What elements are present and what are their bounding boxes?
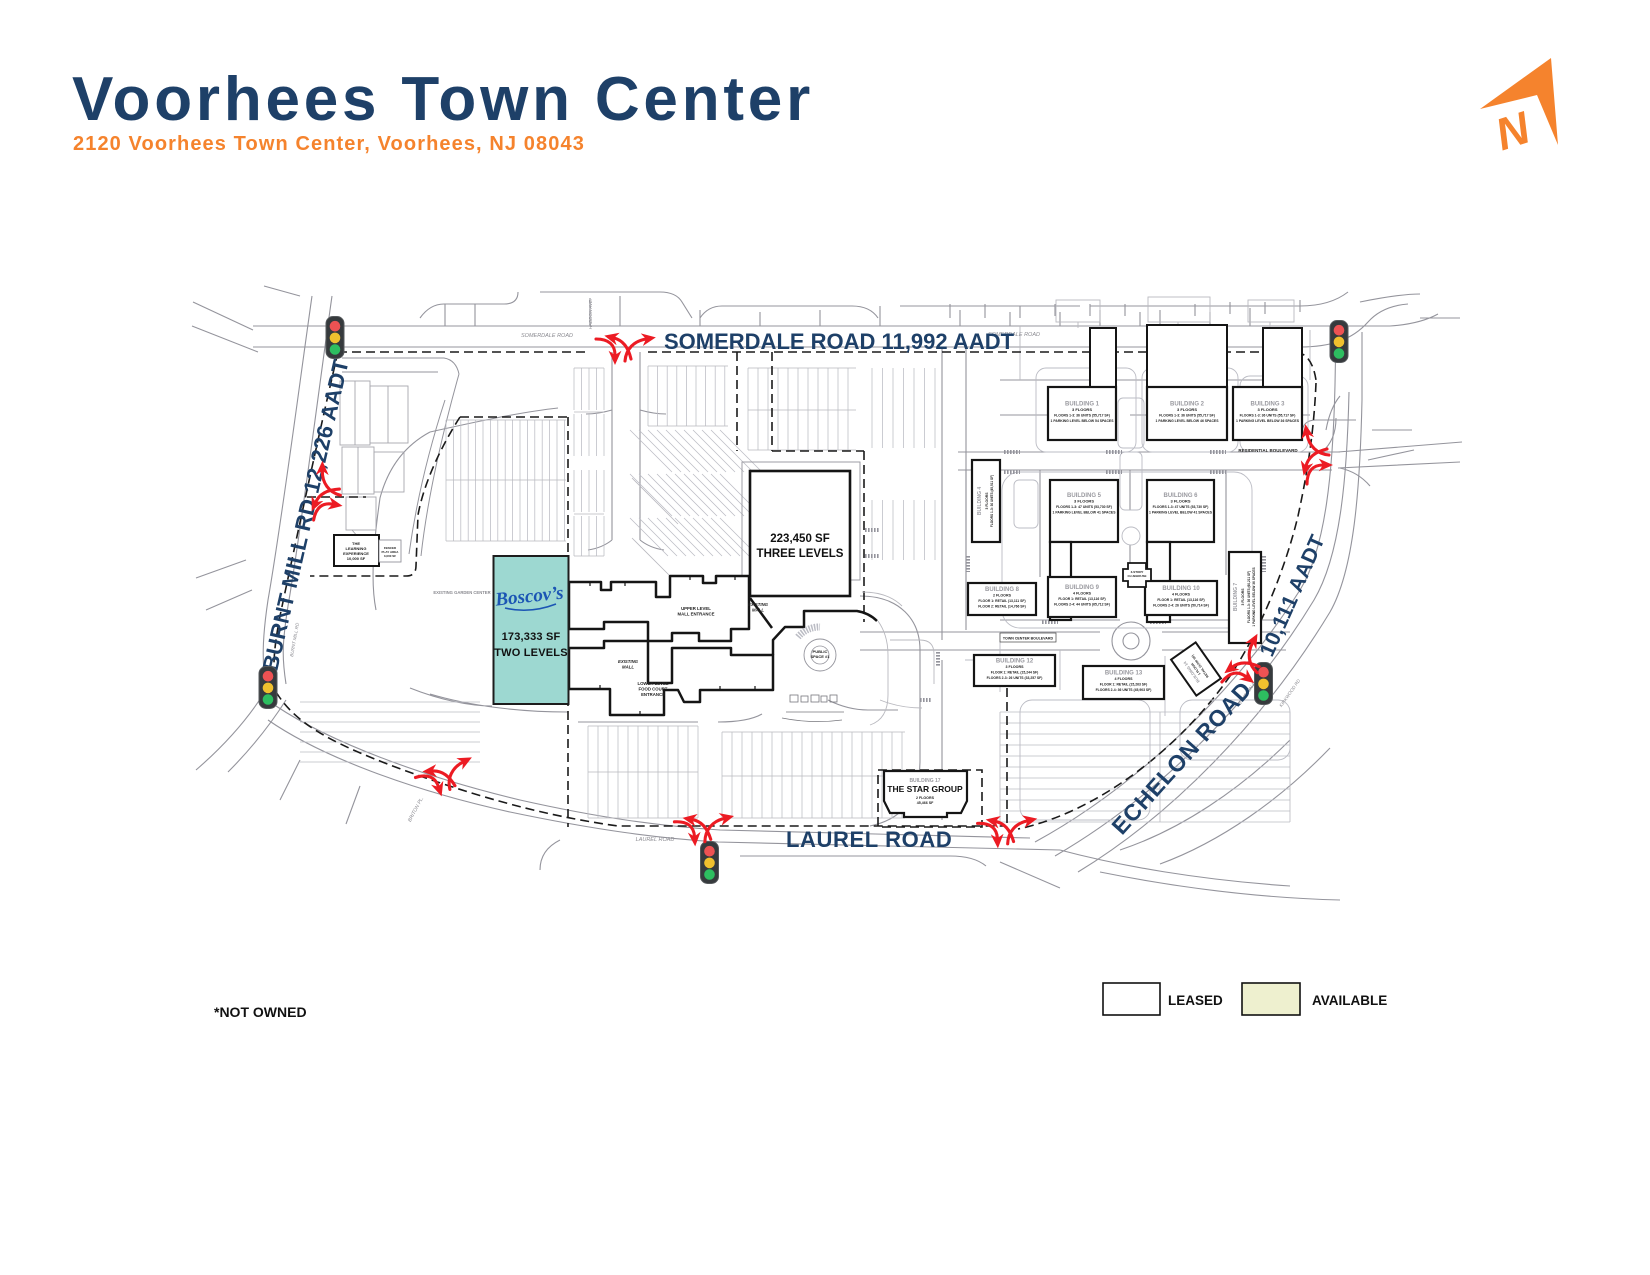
- svg-text:FLOOR 1: RETAIL (13,116 SF): FLOOR 1: RETAIL (13,116 SF): [1058, 597, 1105, 601]
- svg-text:2 FLOORS: 2 FLOORS: [916, 796, 935, 800]
- svg-text:BUILDING 9: BUILDING 9: [1065, 585, 1100, 591]
- svg-text:3 FLOORS: 3 FLOORS: [1170, 499, 1190, 504]
- svg-text:RESIDENTIAL BOULEVARD: RESIDENTIAL BOULEVARD: [1238, 448, 1298, 453]
- svg-text:FLOORS 1-3: 47 UNITS (53,730 S: FLOORS 1-3: 47 UNITS (53,730 SF): [1153, 505, 1209, 509]
- svg-text:1 PARKING LEVEL BELOW 41 SPACE: 1 PARKING LEVEL BELOW 41 SPACES: [1149, 510, 1213, 514]
- svg-text:2 FLOORS: 2 FLOORS: [993, 594, 1012, 598]
- svg-text:FLOORS 1-3: 36 UNITS (55,717 S: FLOORS 1-3: 36 UNITS (55,717 SF): [1240, 414, 1296, 418]
- svg-text:FLOORS 1-3: 36 UNITS (60,211 S: FLOORS 1-3: 36 UNITS (60,211 SF): [1247, 571, 1251, 623]
- svg-text:FLOOR 1: RETAIL (15,244 SF): FLOOR 1: RETAIL (15,244 SF): [991, 671, 1039, 675]
- svg-text:MALL ENTRANCE: MALL ENTRANCE: [678, 612, 715, 617]
- svg-text:3 FLOORS: 3 FLOORS: [1241, 588, 1245, 606]
- svg-text:173,333 SF: 173,333 SF: [502, 631, 561, 643]
- svg-text:3 FLOORS: 3 FLOORS: [1257, 407, 1277, 412]
- svg-text:1 PARKING LEVEL BELOW 36 SPACE: 1 PARKING LEVEL BELOW 36 SPACES: [1252, 567, 1256, 626]
- svg-text:EXISTING: EXISTING: [748, 602, 769, 607]
- svg-text:BUILDING 4: BUILDING 4: [977, 487, 983, 516]
- svg-text:EXISTING: EXISTING: [618, 659, 639, 664]
- svg-text:1 PARKING LEVEL BELOW 54 SPACE: 1 PARKING LEVEL BELOW 54 SPACES: [1051, 419, 1115, 423]
- svg-text:MALL: MALL: [622, 665, 634, 670]
- svg-text:BUILDING 8: BUILDING 8: [985, 587, 1020, 593]
- svg-text:TOWN CENTER BOULEVARD: TOWN CENTER BOULEVARD: [1003, 637, 1054, 641]
- svg-text:LEASED: LEASED: [1168, 993, 1223, 1008]
- svg-text:3,000 SF: 3,000 SF: [384, 554, 396, 558]
- svg-text:FLOORS 2-4: 36 UNITS (45,903 S: FLOORS 2-4: 36 UNITS (45,903 SF): [1096, 688, 1152, 692]
- svg-text:4 FLOORS: 4 FLOORS: [1073, 592, 1092, 596]
- svg-text:N: N: [1489, 101, 1537, 155]
- svg-text:1 PARKING LEVEL BELOW 46 SPACE: 1 PARKING LEVEL BELOW 46 SPACES: [1156, 419, 1220, 423]
- svg-text:LAUREL ROAD: LAUREL ROAD: [636, 837, 675, 843]
- svg-text:LAUREL ROAD: LAUREL ROAD: [786, 827, 952, 852]
- svg-text:BUILDING 7: BUILDING 7: [1233, 583, 1239, 612]
- svg-text:BUILDING 12: BUILDING 12: [996, 659, 1034, 665]
- svg-text:THE STAR GROUP: THE STAR GROUP: [887, 784, 963, 794]
- svg-text:*NOT OWNED: *NOT OWNED: [214, 1004, 307, 1020]
- svg-text:EXISTING GARDEN CENTER: EXISTING GARDEN CENTER: [433, 590, 490, 595]
- svg-text:4 FLOORS: 4 FLOORS: [1115, 677, 1134, 681]
- svg-text:FLOORS 1-3: 30 UNITS (45,511 S: FLOORS 1-3: 30 UNITS (45,511 SF): [990, 475, 994, 527]
- svg-text:FLOOR 2: RETAIL (14,766 SF): FLOOR 2: RETAIL (14,766 SF): [978, 604, 1026, 608]
- svg-text:CLUBHOUSE: CLUBHOUSE: [1127, 574, 1146, 578]
- svg-text:4 FLOORS: 4 FLOORS: [1172, 593, 1191, 597]
- svg-text:SOMERDALE ROAD: SOMERDALE ROAD: [521, 333, 573, 339]
- svg-text:3 FLOORS: 3 FLOORS: [1006, 665, 1025, 669]
- svg-text:FLOORS 1-3: 36 UNITS (55,717 S: FLOORS 1-3: 36 UNITS (55,717 SF): [1054, 414, 1110, 418]
- svg-text:FLOORS 2-4: 26 UNITS (50,714 S: FLOORS 2-4: 26 UNITS (50,714 SF): [1153, 603, 1209, 607]
- svg-text:FLOOR 1: RETAIL (13,111 SF): FLOOR 1: RETAIL (13,111 SF): [978, 599, 1025, 603]
- svg-text:SPACE #1: SPACE #1: [810, 654, 830, 659]
- svg-text:3 FLOORS: 3 FLOORS: [1074, 499, 1094, 504]
- svg-text:FLOORS 1-3: 47 UNITS (53,730 S: FLOORS 1-3: 47 UNITS (53,730 SF): [1056, 505, 1112, 509]
- svg-text:BUILDING 10: BUILDING 10: [1162, 586, 1200, 592]
- svg-text:FLOORS 1-3: 36 UNITS (55,717 S: FLOORS 1-3: 36 UNITS (55,717 SF): [1159, 414, 1215, 418]
- svg-text:3 FLOORS: 3 FLOORS: [1072, 407, 1092, 412]
- svg-text:THREE LEVELS: THREE LEVELS: [757, 548, 844, 560]
- svg-text:TWO LEVELS: TWO LEVELS: [494, 647, 568, 659]
- svg-text:1 PARKING LEVEL BELOW 41 SPACE: 1 PARKING LEVEL BELOW 41 SPACES: [1053, 510, 1117, 514]
- svg-text:3 FLOORS: 3 FLOORS: [1177, 407, 1197, 412]
- svg-text:HADDON AVE.: HADDON AVE.: [588, 299, 593, 330]
- svg-text:10,000 SF: 10,000 SF: [347, 556, 366, 561]
- svg-text:FOOD COURT: FOOD COURT: [639, 687, 668, 692]
- svg-text:223,450 SF: 223,450 SF: [770, 533, 829, 545]
- svg-text:ENTRANCE: ENTRANCE: [641, 692, 665, 697]
- svg-text:UPPER LEVEL: UPPER LEVEL: [681, 606, 711, 611]
- svg-text:LOWER LEVEL: LOWER LEVEL: [637, 681, 668, 686]
- svg-text:FLOORS 2-4: 44 UNITS (65,712 S: FLOORS 2-4: 44 UNITS (65,712 SF): [1054, 602, 1110, 606]
- svg-text:FLOOR 1: RETAIL (13,116 SF): FLOOR 1: RETAIL (13,116 SF): [1157, 598, 1204, 602]
- svg-text:45,466 SF: 45,466 SF: [917, 801, 934, 805]
- svg-text:3 FLOORS: 3 FLOORS: [985, 492, 989, 510]
- svg-text:MALL: MALL: [752, 608, 764, 613]
- svg-text:AVAILABLE: AVAILABLE: [1312, 993, 1387, 1008]
- svg-text:BUILDING 13: BUILDING 13: [1105, 671, 1143, 677]
- svg-text:SOMERDALE ROAD 11,992 AADT: SOMERDALE ROAD 11,992 AADT: [664, 329, 1015, 354]
- svg-text:FLOOR 1: RETAIL (15,263 SF): FLOOR 1: RETAIL (15,263 SF): [1100, 683, 1148, 687]
- svg-text:FLOORS 2-3: 26 UNITS (33,257 S: FLOORS 2-3: 26 UNITS (33,257 SF): [987, 676, 1043, 680]
- svg-text:1 PARKING LEVEL BELOW 36 SPACE: 1 PARKING LEVEL BELOW 36 SPACES: [1236, 419, 1300, 423]
